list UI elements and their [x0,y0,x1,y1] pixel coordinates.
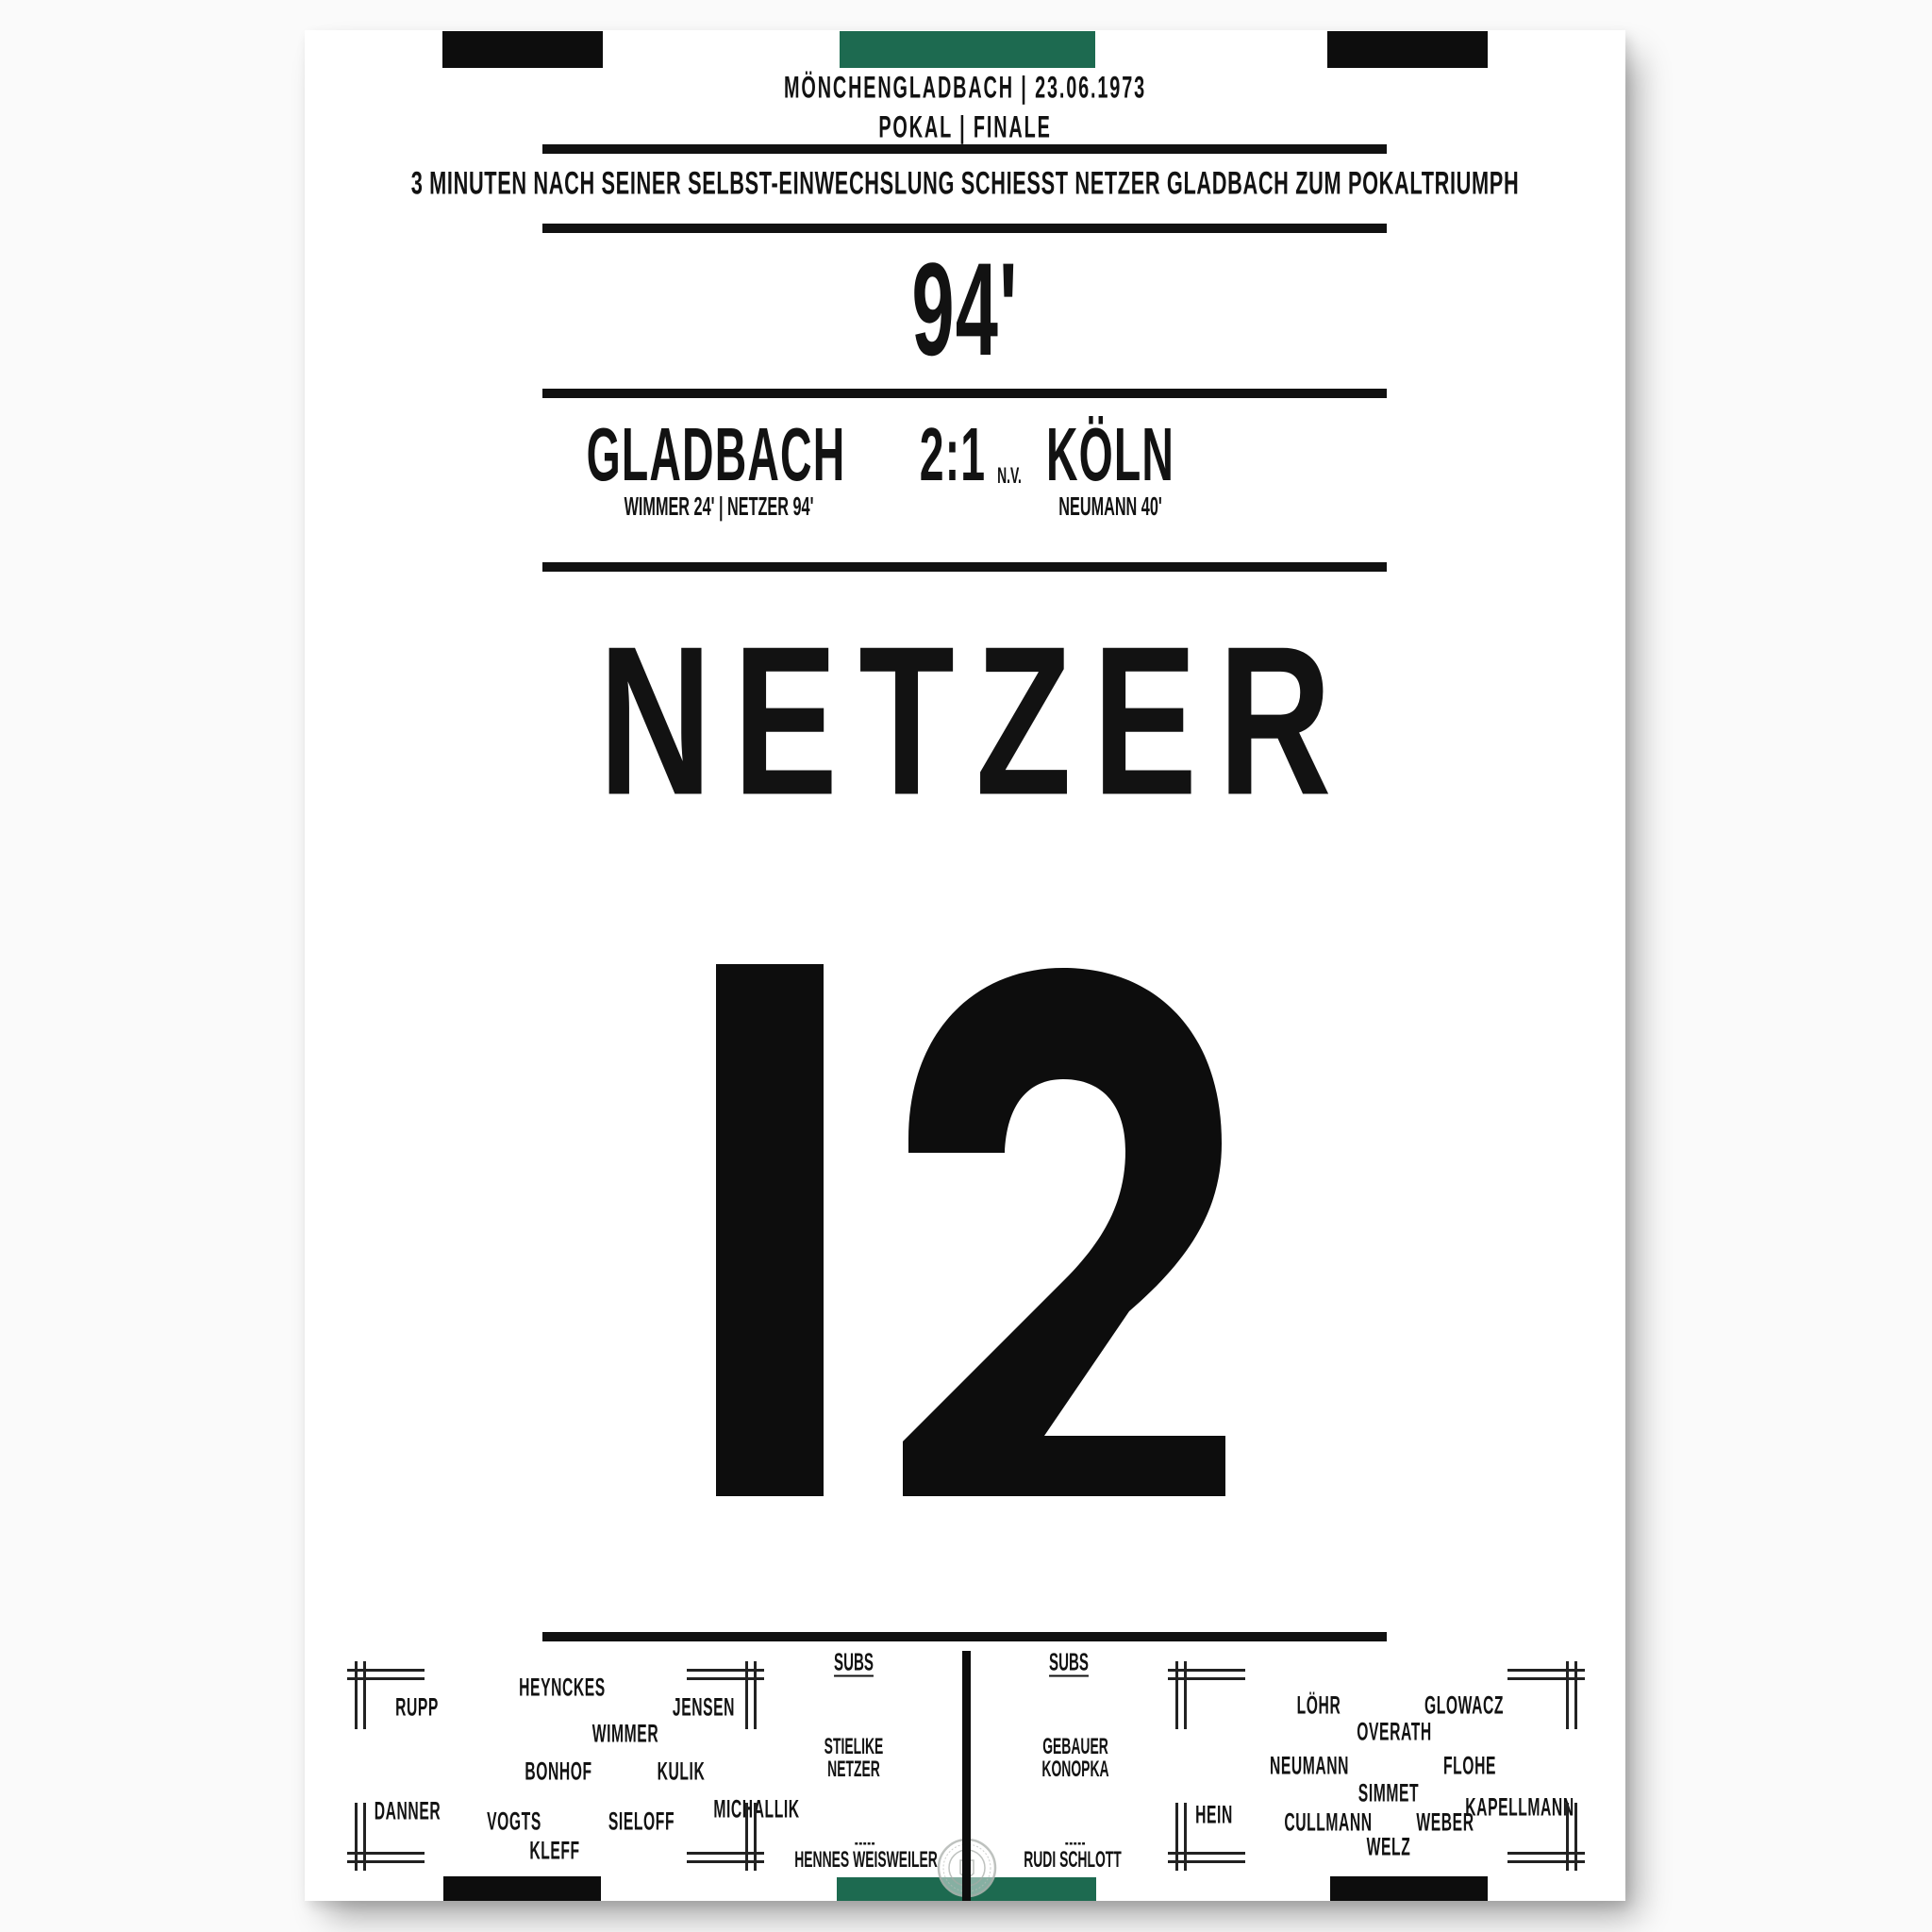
home-player-label: VOGTS [487,1807,541,1837]
pitch-corner-mark [1168,1677,1245,1680]
home-player-label: JENSEN [673,1693,735,1723]
page-background: MÖNCHENGLADBACH | 23.06.1973 POKAL | FIN… [0,0,1932,1932]
home-player-label: DANNER [375,1797,441,1826]
divider-rule-5 [542,1632,1387,1641]
pitch-corner-mark [1507,1860,1585,1863]
away-player-label: LÖHR [1297,1691,1341,1721]
pitch-corner-mark [347,1852,425,1855]
pitch-corner-mark [347,1669,425,1672]
divider-rule-1 [542,144,1387,154]
match-description: 3 MINUTEN NACH SEINER SELBST-EINWECHSLUN… [411,166,1520,203]
home-sub-player: NETZER [827,1757,880,1783]
away-player-label: NEUMANN [1270,1752,1349,1781]
goal-minute: 94' [911,233,1018,386]
home-coach-name: HENNES WEISWEILER [794,1847,938,1874]
away-player-label: GLOWACZ [1424,1691,1504,1721]
home-player-label: KULIK [658,1757,706,1787]
away-player-label: SIMMET [1358,1779,1419,1808]
pitch-corner-mark [1168,1669,1245,1672]
pitch-corner-mark [1168,1852,1245,1855]
home-player-label: WIMMER [592,1720,658,1749]
pitch-corner-mark [1507,1669,1585,1672]
pitch-corner-mark [347,1860,425,1863]
score-result: 2:1 [920,411,987,498]
home-team-name: GLADBACH [587,411,846,498]
away-sub-player: KONOPKA [1041,1757,1108,1783]
divider-rule-4 [542,562,1387,572]
digit-1 [716,964,824,1496]
top-black-bar-right [1327,31,1488,68]
away-player-label: CULLMANN [1284,1808,1372,1838]
top-black-bar-left [442,31,603,68]
away-scorers: NEUMANN 40' [1058,491,1161,522]
pitch-corner-mark [1507,1677,1585,1680]
home-scorers: WIMMER 24' | NETZER 94' [625,491,814,522]
home-player-label: KLEFF [529,1837,579,1866]
away-player-label: WELZ [1367,1833,1411,1862]
away-player-label: OVERATH [1357,1718,1431,1747]
divider-rule-2 [542,224,1387,233]
hero-player-name: NETZER [577,599,1352,843]
overtime-note: N.V. [997,463,1022,490]
match-location-date: MÖNCHENGLADBACH | 23.06.1973 [784,71,1146,106]
home-player-label: BONHOF [525,1757,591,1787]
pitch-corner-mark [687,1677,764,1680]
pitch-corner-mark [687,1860,764,1863]
bottom-black-bar-right [1330,1876,1488,1901]
away-player-label: KAPELLMANN [1465,1793,1574,1823]
away-team-name: KÖLN [1046,411,1174,498]
match-competition: POKAL | FINALE [878,110,1051,145]
pitch-corner-mark [687,1669,764,1672]
away-subs-header: SUBS [1049,1648,1089,1677]
top-green-bar [840,31,1095,68]
jersey-number-12 [716,964,1225,1496]
home-player-label: SIELOFF [608,1807,675,1837]
pitch-corner-mark [347,1677,425,1680]
home-player-label: HEYNCKES [519,1674,606,1703]
away-player-label: WEBER [1416,1808,1474,1838]
away-player-label: FLOHE [1443,1752,1496,1781]
digit-2 [903,968,1225,1496]
divider-rule-3 [542,389,1387,398]
poster-card: MÖNCHENGLADBACH | 23.06.1973 POKAL | FIN… [305,30,1625,1901]
pitch-corner-mark [1168,1860,1245,1863]
away-player-label: HEIN [1195,1801,1233,1830]
halfway-line [962,1651,971,1901]
home-player-label: RUPP [395,1693,439,1723]
pitch-corner-mark [1507,1852,1585,1855]
away-coach-name: RUDI SCHLOTT [1024,1847,1122,1874]
pitch-corner-mark [687,1852,764,1855]
home-player-label: MICHALLIK [713,1795,799,1824]
bottom-black-bar-left [443,1876,601,1901]
home-subs-header: SUBS [834,1648,874,1677]
